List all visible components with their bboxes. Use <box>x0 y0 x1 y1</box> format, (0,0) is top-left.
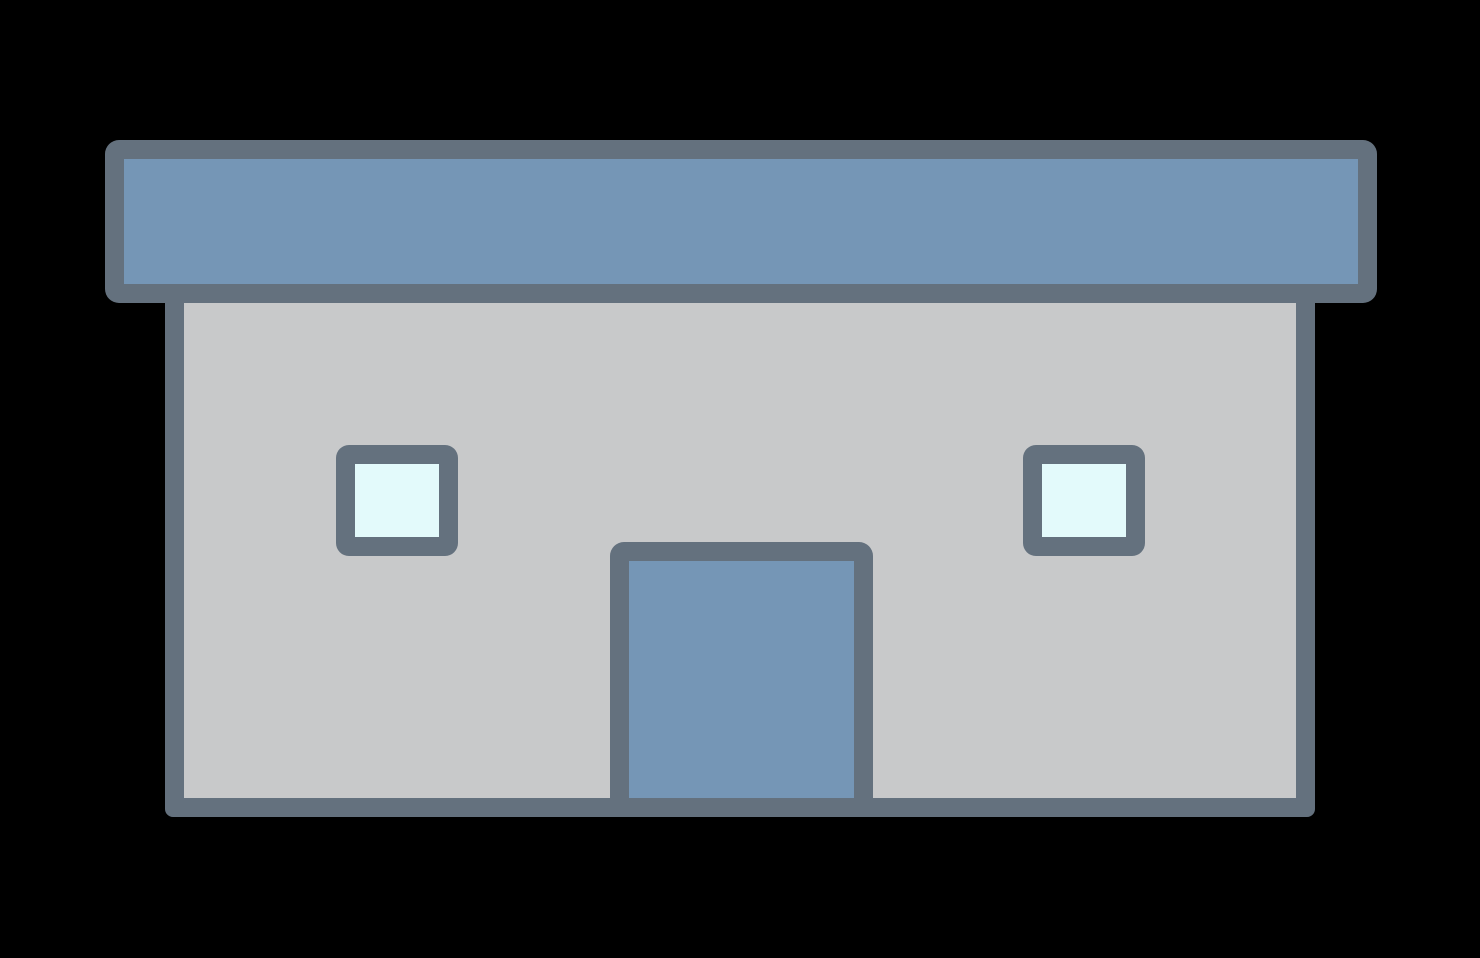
window-left <box>336 445 458 556</box>
window-right <box>1023 445 1145 556</box>
building-door <box>610 542 873 817</box>
building-roof <box>105 140 1377 303</box>
canvas-background <box>0 0 1480 958</box>
building-illustration <box>0 0 1480 958</box>
